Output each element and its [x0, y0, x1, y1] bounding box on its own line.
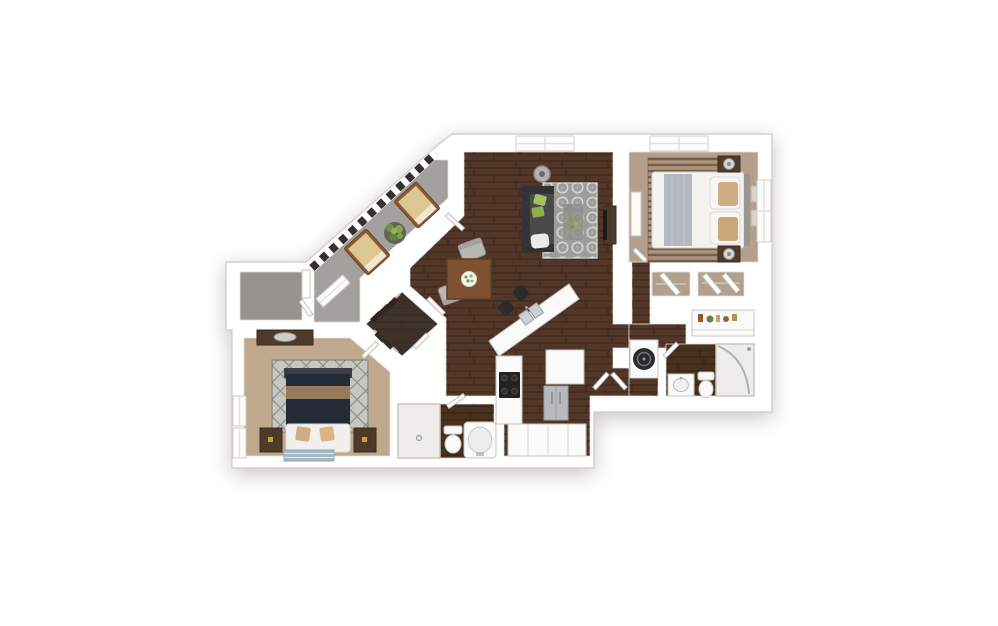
shower-head-icon: [747, 347, 751, 351]
floor-plan-image: [0, 0, 998, 626]
toilet-icon-bath2: [698, 372, 714, 398]
bed-throw-band: [286, 386, 350, 399]
tv-console: [603, 206, 616, 244]
storage-door-wall-stub: [302, 270, 310, 298]
decor-vase-3: [716, 315, 720, 322]
linen-shelf: [692, 310, 754, 336]
bedroom2-nightstand-2: [354, 428, 376, 452]
sofa-throw-white: [530, 233, 549, 249]
bathtub: [464, 422, 496, 458]
master-pillow-tan-1: [718, 182, 738, 206]
decor-vase-2: [707, 316, 714, 323]
storage-room-floor: [240, 272, 302, 320]
refrigerator-icon: [544, 386, 568, 420]
wall-art-1: [751, 186, 757, 202]
master-bed: [652, 172, 750, 248]
table-centerpiece: [462, 272, 477, 287]
decor-vase-5: [732, 314, 737, 321]
bedroom2-nightstand-1: [260, 428, 282, 452]
shower-bath2: [716, 344, 754, 396]
bedroom2-window-2: [233, 428, 246, 458]
headboard: [744, 174, 750, 246]
vanity-sink-bath2: [668, 374, 694, 396]
ceiling-light-icon: [534, 166, 550, 182]
master-bedroom-window-top: [650, 136, 708, 151]
nightstand-2: [718, 246, 740, 262]
floor-plan: [226, 134, 772, 468]
potted-plant: [384, 222, 406, 244]
living-room-window: [516, 136, 574, 151]
bedroom2-bed: [284, 368, 352, 452]
laundry-closet: [630, 340, 658, 378]
kitchen-upper-cabinet: [546, 350, 584, 384]
master-dresser: [631, 192, 641, 236]
dresser-mirror-icon: [274, 333, 296, 342]
master-pillow-tan-2: [718, 217, 738, 241]
accent-rug-blue: [284, 450, 334, 461]
sofa-pillow-green-2: [531, 206, 545, 218]
tv-icon: [603, 210, 607, 240]
master-bedroom-window-right: [757, 180, 771, 242]
decor-vase-1: [698, 314, 703, 322]
bedroom2-window-1: [233, 396, 246, 426]
stove-icon: [499, 372, 520, 398]
pantry-shelves: [508, 424, 586, 456]
bedroom2-dresser: [257, 330, 313, 345]
sofa: [522, 186, 554, 252]
wall-art-2: [751, 210, 757, 226]
master-door-recess-planks: [632, 262, 650, 324]
decor-vase-4: [723, 316, 729, 322]
floor-plan-canvas: [0, 0, 998, 626]
bedroom2-pillow-tan-2: [319, 426, 335, 442]
nightstand-1: [718, 156, 740, 172]
toilet-icon-bath1: [444, 426, 462, 453]
bedroom2-pillow-tan-1: [295, 426, 311, 442]
shower-stall: [398, 404, 440, 458]
